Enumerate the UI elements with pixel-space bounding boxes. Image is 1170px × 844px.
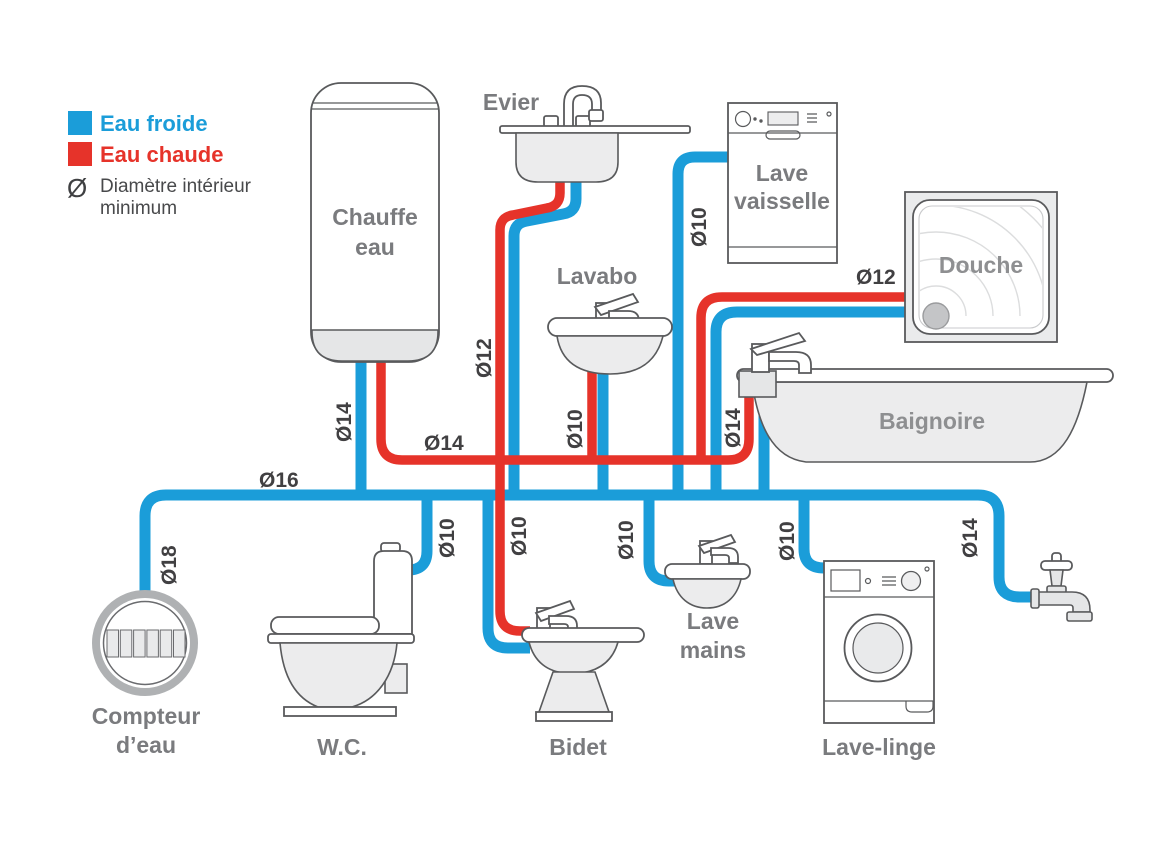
washbasin	[548, 294, 672, 374]
label-shower: Douche	[939, 252, 1023, 278]
dia-hot-distribution: Ø14	[424, 432, 464, 455]
hand-basin-bowl	[673, 579, 741, 608]
dishwasher-display	[768, 112, 798, 125]
plumbing-diagram: Eau froide Eau chaude Ø Diamètre intérie…	[0, 0, 1170, 844]
legend-cold-swatch	[68, 111, 92, 135]
dishwasher-dot-icon	[753, 117, 756, 120]
garden-tap-body-spout	[1038, 592, 1090, 612]
sink-basin	[516, 133, 618, 182]
label-washing-machine: Lave-linge	[822, 734, 936, 760]
shower-drain-icon	[923, 303, 949, 329]
dia-bidet-branch: Ø10	[508, 516, 531, 556]
water-meter	[96, 594, 194, 692]
diagram-canvas: Eau froide Eau chaude Ø Diamètre intérie…	[0, 0, 1170, 844]
legend-diameter-note-2: minimum	[100, 198, 177, 219]
bidet	[522, 601, 644, 721]
legend: Eau froide Eau chaude Ø Diamètre intérie…	[67, 111, 252, 219]
legend-hot-swatch	[68, 142, 92, 166]
hand-basin-mixer-spout	[711, 548, 738, 563]
toilet-ledge	[268, 634, 414, 643]
dia-cold-main: Ø16	[259, 469, 299, 492]
garden-tap-handle-bar	[1041, 561, 1072, 570]
dia-toilet-branch: Ø10	[436, 518, 459, 558]
label-dishwasher-1: Lave	[756, 160, 808, 186]
washing-machine-dial-icon	[902, 572, 921, 591]
washing-machine	[824, 561, 934, 723]
bathtub-faucet-base	[739, 371, 776, 397]
legend-diameter-icon: Ø	[67, 173, 87, 203]
dia-bathtub-hot-riser: Ø14	[722, 408, 745, 448]
dia-washbasin-riser: Ø10	[564, 409, 587, 449]
label-toilet: W.C.	[317, 734, 367, 760]
label-hand-basin-1: Lave	[687, 608, 739, 634]
hand-basin	[665, 535, 750, 608]
label-bidet: Bidet	[549, 734, 607, 760]
washbasin-bowl	[557, 336, 663, 374]
label-kitchen-sink: Evier	[483, 89, 539, 115]
pipe-cold-washing-machine	[804, 495, 832, 568]
garden-tap-outlet	[1067, 612, 1092, 621]
dia-dishwasher-riser: Ø10	[688, 207, 711, 247]
bathtub-rim	[737, 369, 1113, 382]
label-dishwasher-2: vaisselle	[734, 188, 830, 214]
dia-meter-riser: Ø18	[158, 545, 181, 585]
dia-sink-hot-riser: Ø12	[473, 338, 496, 378]
hand-basin-rim	[665, 564, 750, 579]
legend-cold-label: Eau froide	[100, 111, 208, 136]
label-washbasin: Lavabo	[557, 263, 638, 289]
dia-hand-basin-branch: Ø10	[615, 520, 638, 560]
label-water-heater-2: eau	[355, 234, 395, 260]
label-hand-basin-2: mains	[680, 637, 746, 663]
water-heater-bottom-cap	[312, 330, 438, 361]
toilet-bowl	[280, 643, 397, 707]
label-water-meter-1: Compteur	[92, 703, 201, 729]
dia-washing-machine-branch: Ø10	[776, 521, 799, 561]
bathtub	[737, 333, 1113, 462]
garden-tap-flange	[1031, 589, 1039, 608]
dia-shower-pair: Ø12	[856, 266, 896, 289]
toilet-seat	[271, 617, 379, 634]
washbasin-rim	[548, 318, 672, 336]
toilet-base	[284, 707, 396, 716]
legend-hot-label: Eau chaude	[100, 142, 223, 167]
garden-tap	[1031, 553, 1092, 621]
dia-heater-inlet: Ø14	[333, 402, 356, 442]
bidet-bowl	[529, 642, 618, 673]
label-water-heater-1: Chauffe	[332, 204, 418, 230]
toilet-cistern	[374, 551, 412, 634]
dishwasher-dot2-icon	[759, 119, 762, 122]
sink-counter	[500, 126, 690, 133]
bidet-pedestal	[539, 672, 609, 712]
sink-faucet-spout-tip	[589, 110, 603, 121]
legend-diameter-note-1: Diamètre intérieur	[100, 176, 252, 197]
label-bathtub: Baignoire	[879, 408, 985, 434]
washing-machine-drum-inner	[853, 623, 903, 673]
toilet	[268, 543, 414, 716]
label-water-meter-2: d’eau	[116, 732, 176, 758]
garden-tap-neck	[1050, 570, 1063, 586]
bidet-rim	[522, 628, 644, 642]
dia-garden-tap-branch: Ø14	[959, 518, 982, 558]
bidet-base	[536, 712, 612, 721]
